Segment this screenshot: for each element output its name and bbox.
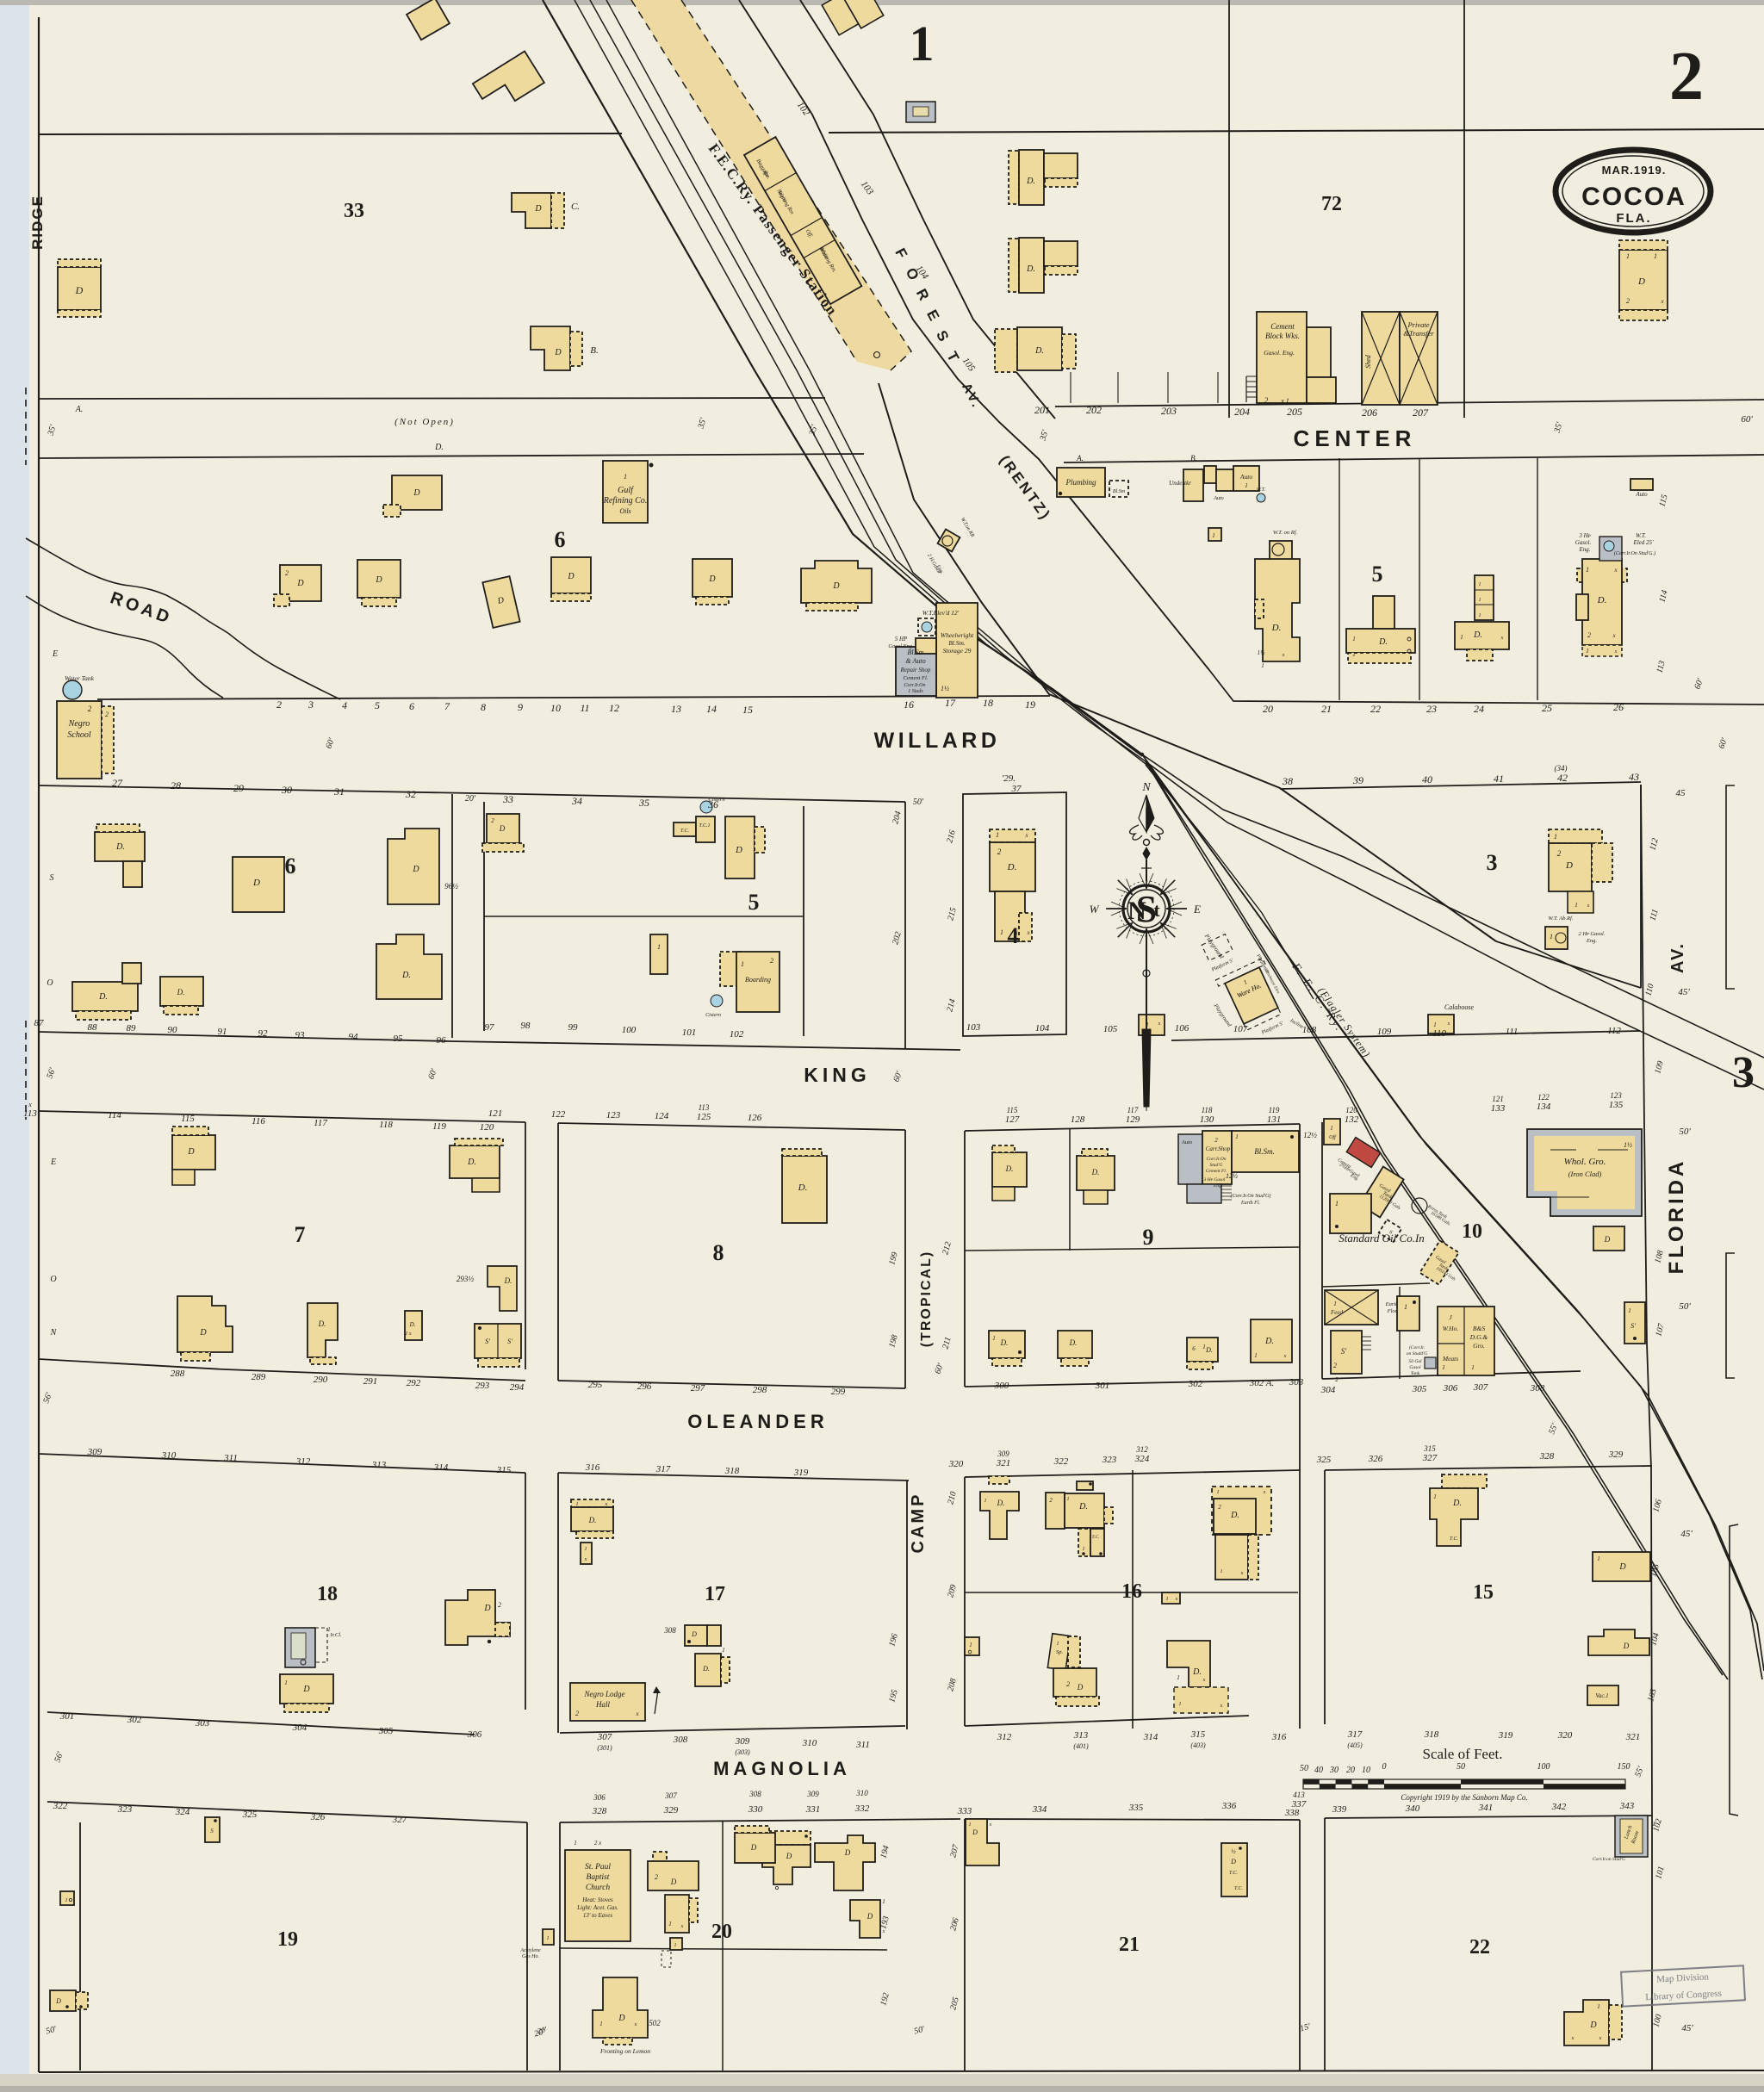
svg-text:35: 35	[638, 797, 649, 809]
svg-text:x: x	[1158, 1021, 1161, 1027]
svg-text:D: D	[413, 488, 420, 498]
svg-text:413: 413	[1293, 1791, 1305, 1799]
svg-text:17: 17	[705, 1583, 725, 1605]
svg-text:W.T. Ab.Rf.: W.T. Ab.Rf.	[1549, 916, 1574, 922]
svg-text:312: 312	[295, 1456, 311, 1467]
svg-text:96: 96	[437, 1035, 447, 1046]
svg-text:D.: D.	[504, 1276, 512, 1285]
svg-text:D: D	[708, 574, 716, 584]
svg-text:118: 118	[379, 1120, 393, 1130]
svg-text:302 A.: 302 A.	[1249, 1378, 1275, 1388]
svg-text:101: 101	[682, 1027, 697, 1038]
svg-text:1: 1	[547, 1936, 550, 1941]
svg-text:x: x	[1282, 653, 1285, 658]
svg-text:x: x	[1220, 1704, 1223, 1709]
svg-text:D.: D.	[588, 1516, 597, 1524]
svg-text:W.T.: W.T.	[1257, 487, 1265, 493]
svg-text:D: D	[1604, 1235, 1611, 1244]
svg-text:113: 113	[699, 1103, 710, 1112]
svg-text:150: 150	[1618, 1762, 1630, 1772]
svg-text:314: 314	[433, 1462, 449, 1473]
svg-text:& Auto: & Auto	[905, 657, 925, 665]
svg-text:D.: D.	[1378, 637, 1388, 647]
svg-text:D: D	[187, 1147, 195, 1157]
svg-text:43: 43	[1629, 771, 1639, 783]
svg-text:D: D	[1589, 2021, 1597, 2030]
svg-text:90: 90	[168, 1025, 178, 1035]
svg-text:100: 100	[1537, 1762, 1550, 1772]
svg-text:202: 202	[1086, 404, 1102, 416]
svg-text:1: 1	[773, 1872, 775, 1878]
svg-text:Calaboose: Calaboose	[1444, 1003, 1475, 1011]
svg-text:50: 50	[1300, 1764, 1308, 1773]
svg-text:305: 305	[378, 1726, 394, 1736]
svg-text:312: 312	[997, 1732, 1012, 1742]
svg-text:20: 20	[711, 1921, 732, 1943]
svg-text:60': 60'	[1741, 414, 1753, 425]
svg-text:205: 205	[1287, 406, 1302, 418]
svg-text:107: 107	[1233, 1024, 1248, 1034]
svg-text:9: 9	[518, 701, 523, 713]
svg-text:1: 1	[722, 1647, 725, 1654]
svg-text:339: 339	[1332, 1804, 1347, 1815]
svg-text:Cement: Cement	[1270, 322, 1295, 331]
svg-text:D: D	[691, 1630, 697, 1638]
svg-text:110: 110	[1432, 1028, 1446, 1039]
svg-text:x: x	[1571, 2036, 1575, 2041]
svg-text:311: 311	[855, 1740, 870, 1750]
svg-text:D: D	[483, 1604, 491, 1613]
svg-text:Cistern: Cistern	[705, 1013, 721, 1018]
svg-text:306: 306	[1443, 1383, 1458, 1394]
svg-text:307: 307	[597, 1732, 612, 1742]
svg-text:x: x	[28, 1101, 32, 1108]
svg-text:FLORIDA: FLORIDA	[1665, 1158, 1688, 1275]
svg-text:S': S'	[507, 1338, 512, 1345]
svg-text:½: ½	[1231, 1848, 1236, 1855]
svg-text:x: x	[1447, 1021, 1450, 1027]
svg-text:88: 88	[88, 1022, 98, 1033]
svg-text:118: 118	[1202, 1106, 1213, 1114]
svg-text:317: 317	[1347, 1729, 1363, 1740]
svg-text:89: 89	[127, 1023, 137, 1034]
svg-text:343: 343	[1619, 1801, 1635, 1811]
svg-text:308: 308	[748, 1790, 761, 1798]
svg-text:37: 37	[1011, 784, 1022, 794]
svg-text:97: 97	[485, 1022, 495, 1033]
svg-text:Oils: Oils	[619, 507, 630, 515]
svg-text:29: 29	[233, 782, 244, 794]
svg-text:O: O	[47, 978, 53, 988]
svg-text:S': S'	[1630, 1322, 1636, 1330]
svg-text:325: 325	[242, 1810, 258, 1820]
svg-text:N: N	[1141, 781, 1151, 794]
svg-text:Gas Ho.: Gas Ho.	[522, 1954, 539, 1959]
svg-text:15: 15	[742, 704, 753, 716]
svg-text:39: 39	[1352, 774, 1363, 786]
svg-text:16: 16	[1121, 1580, 1142, 1603]
svg-text:1: 1	[1000, 928, 1003, 936]
svg-text:1: 1	[1433, 1493, 1437, 1500]
svg-text:WILLARD: WILLARD	[874, 729, 1001, 753]
svg-text:D.: D.	[1264, 1337, 1274, 1346]
svg-text:329: 329	[1608, 1450, 1624, 1460]
svg-text:1: 1	[741, 960, 744, 968]
svg-text:St. Paul: St. Paul	[585, 1863, 611, 1872]
svg-text:328: 328	[1539, 1451, 1555, 1462]
svg-text:98: 98	[521, 1021, 531, 1031]
svg-text:303: 303	[1289, 1377, 1304, 1387]
svg-text:121: 121	[1492, 1095, 1504, 1103]
svg-text:Gasol: Gasol	[1409, 1365, 1421, 1370]
svg-text:6: 6	[1192, 1345, 1196, 1352]
svg-text:T.C.: T.C.	[680, 829, 689, 834]
svg-text:D.: D.	[98, 992, 108, 1002]
svg-text:40: 40	[1422, 773, 1432, 785]
svg-text:1: 1	[1177, 1674, 1180, 1681]
svg-text:B.: B.	[1190, 454, 1197, 462]
svg-text:306: 306	[467, 1729, 482, 1740]
svg-text:(Corr.Ir.On Stud'G.): (Corr.Ir.On Stud'G.)	[1614, 550, 1655, 556]
svg-text:2: 2	[1264, 396, 1269, 405]
svg-text:28: 28	[171, 779, 181, 791]
svg-text:93: 93	[295, 1030, 306, 1040]
svg-text:Corr.Ir.On: Corr.Ir.On	[904, 683, 925, 688]
svg-text:72: 72	[1321, 193, 1342, 215]
svg-text:Heat: Stoves: Heat: Stoves	[581, 1896, 613, 1903]
svg-text:Baptist: Baptist	[587, 1873, 610, 1882]
svg-text:306: 306	[593, 1793, 606, 1802]
svg-text:(Not Open): (Not Open)	[394, 417, 455, 427]
svg-text:104: 104	[1035, 1023, 1050, 1034]
svg-text:33: 33	[502, 793, 513, 805]
svg-text:1: 1	[1212, 532, 1215, 539]
svg-text:134: 134	[1537, 1102, 1551, 1112]
svg-text:1: 1	[992, 1335, 996, 1342]
svg-text:D: D	[1077, 1683, 1084, 1692]
svg-text:D: D	[302, 1685, 310, 1694]
svg-text:5 HP: 5 HP	[895, 636, 908, 642]
svg-text:Meats: Meats	[1442, 1355, 1458, 1363]
svg-text:318: 318	[1424, 1729, 1439, 1740]
svg-text:D: D	[55, 1997, 61, 2005]
svg-text:Ir.Cl.: Ir.Cl.	[329, 1632, 342, 1638]
svg-text:95: 95	[394, 1034, 404, 1044]
svg-text:18: 18	[317, 1583, 338, 1605]
svg-text:2: 2	[1218, 1504, 1221, 1511]
svg-text:1: 1	[585, 1547, 587, 1552]
svg-text:293½: 293½	[457, 1275, 475, 1283]
svg-text:D: D	[1565, 860, 1573, 871]
svg-text:on Studd'G: on Studd'G	[1407, 1351, 1428, 1356]
svg-text:D: D	[618, 2014, 625, 2023]
svg-text:300: 300	[994, 1381, 1009, 1391]
svg-text:2: 2	[770, 957, 773, 965]
svg-text:E: E	[52, 649, 58, 659]
svg-text:D: D	[554, 348, 562, 357]
svg-text:342: 342	[1551, 1802, 1567, 1812]
svg-text:8: 8	[481, 701, 486, 713]
svg-text:331: 331	[805, 1804, 821, 1815]
svg-text:91: 91	[218, 1027, 227, 1037]
svg-text:128: 128	[1071, 1114, 1085, 1125]
svg-text:1: 1	[910, 16, 935, 71]
svg-text:Private: Private	[1407, 320, 1429, 329]
svg-text:2: 2	[1669, 39, 1704, 115]
svg-text:10: 10	[1362, 1766, 1370, 1775]
svg-text:12½: 12½	[1303, 1131, 1317, 1139]
svg-text:W.T.: W.T.	[1636, 532, 1646, 539]
svg-text:10: 10	[550, 702, 561, 714]
svg-text:126: 126	[748, 1113, 762, 1123]
svg-text:12½: 12½	[1226, 1172, 1238, 1180]
svg-text:D.G.&: D.G.&	[1469, 1333, 1488, 1341]
svg-text:308: 308	[1530, 1383, 1545, 1394]
svg-text:335: 335	[1128, 1803, 1144, 1813]
svg-text:Refining Co.: Refining Co.	[603, 496, 648, 506]
svg-text:310: 310	[855, 1789, 868, 1797]
svg-text:21: 21	[1321, 703, 1332, 715]
svg-text:W.Ho.: W.Ho.	[1443, 1325, 1459, 1332]
svg-text:x: x	[605, 1502, 608, 1507]
svg-text:1: 1	[674, 1943, 677, 1948]
svg-text:Auto: Auto	[1213, 496, 1223, 501]
svg-text:C.: C.	[571, 202, 580, 212]
svg-text:135: 135	[1609, 1100, 1624, 1110]
svg-text:2: 2	[1626, 297, 1630, 305]
svg-text:321: 321	[1625, 1732, 1641, 1742]
svg-text:Fronting on Lemon: Fronting on Lemon	[599, 2047, 650, 2055]
svg-text:B&S: B&S	[1473, 1325, 1485, 1332]
svg-text:12: 12	[609, 702, 619, 714]
svg-text:119: 119	[1269, 1106, 1280, 1114]
svg-text:1: 1	[1261, 662, 1264, 669]
svg-text:1: 1	[1550, 933, 1553, 940]
svg-text:3: 3	[1732, 1048, 1755, 1097]
svg-text:293: 293	[475, 1381, 490, 1391]
svg-text:D: D	[1618, 1562, 1626, 1572]
svg-text:E: E	[1193, 903, 1201, 916]
svg-text:1: 1	[1245, 482, 1248, 489]
svg-text:1: 1	[1479, 582, 1481, 587]
svg-text:O: O	[50, 1275, 56, 1284]
svg-text:334: 334	[1032, 1804, 1047, 1815]
svg-text:15: 15	[1473, 1581, 1494, 1604]
svg-text:Copyright 1919 by the Sanborn: Copyright 1919 by the Sanborn Map Co.	[1401, 1793, 1527, 1802]
svg-text:1: 1	[1554, 833, 1557, 841]
svg-text:308: 308	[663, 1626, 676, 1635]
svg-text:9: 9	[1143, 1225, 1154, 1250]
svg-text:D.: D.	[1452, 1499, 1462, 1508]
svg-text:103: 103	[966, 1022, 981, 1033]
svg-text:1: 1	[1597, 2003, 1600, 2010]
svg-text:333: 333	[957, 1806, 972, 1816]
svg-text:Carr.Shop: Carr.Shop	[1206, 1145, 1231, 1152]
svg-text:207: 207	[1413, 407, 1429, 419]
svg-text:132: 132	[1345, 1114, 1359, 1125]
svg-text:D: D	[75, 284, 84, 296]
svg-text:x: x	[1240, 1571, 1244, 1576]
svg-text:D.: D.	[467, 1158, 476, 1167]
svg-text:D: D	[199, 1328, 207, 1338]
svg-text:11: 11	[580, 702, 589, 714]
svg-text:D: D	[670, 1878, 677, 1886]
svg-text:6: 6	[285, 854, 296, 878]
svg-text:304: 304	[1320, 1385, 1336, 1395]
svg-text:1: 1	[1254, 1352, 1258, 1359]
svg-text:1: 1	[1597, 1555, 1600, 1562]
svg-text:26: 26	[1613, 701, 1624, 713]
svg-text:113: 113	[23, 1108, 37, 1119]
svg-text:50': 50'	[913, 798, 924, 807]
svg-text:T.C.: T.C.	[1234, 1886, 1243, 1891]
svg-text:316: 316	[1271, 1732, 1287, 1742]
svg-text:304: 304	[292, 1723, 307, 1733]
svg-text:KING: KING	[804, 1064, 871, 1086]
svg-text:1: 1	[1083, 1547, 1085, 1552]
svg-text:108: 108	[1302, 1025, 1317, 1035]
svg-text:2: 2	[575, 1710, 579, 1717]
svg-text:20': 20'	[465, 794, 476, 804]
svg-text:D.: D.	[177, 988, 185, 996]
svg-text:3 Hᴘ Gasol: 3 Hᴘ Gasol	[1203, 1177, 1226, 1183]
svg-text:1: 1	[996, 831, 999, 839]
svg-text:Corr.Ir.on Stud'G: Corr.Ir.on Stud'G	[1593, 1857, 1625, 1862]
svg-text:D: D	[1623, 1642, 1630, 1650]
svg-text:25: 25	[1542, 702, 1552, 714]
svg-text:(TROPICAL): (TROPICAL)	[919, 1251, 934, 1347]
svg-text:307: 307	[664, 1791, 677, 1800]
svg-text:112: 112	[1607, 1026, 1621, 1036]
svg-text:Earth: Earth	[1385, 1301, 1399, 1307]
svg-text:3 Hᴘ: 3 Hᴘ	[1578, 532, 1590, 539]
svg-text:(Corr.Ir.On Stud'G): (Corr.Ir.On Stud'G)	[1231, 1193, 1271, 1199]
svg-text:Wheelwright: Wheelwright	[941, 631, 974, 639]
svg-text:Hall: Hall	[595, 1700, 611, 1709]
svg-text:326: 326	[310, 1812, 326, 1822]
svg-text:310: 310	[802, 1738, 817, 1748]
svg-text:96½: 96½	[444, 882, 458, 891]
svg-text:D.: D.	[115, 842, 125, 852]
svg-text:D.: D.	[1597, 595, 1607, 605]
svg-text:297: 297	[691, 1383, 705, 1394]
svg-text:309: 309	[806, 1790, 819, 1798]
svg-text:30: 30	[1329, 1766, 1339, 1775]
svg-text:330: 330	[748, 1804, 763, 1815]
svg-text:Block Wks.: Block Wks.	[1265, 332, 1300, 340]
svg-text:Eng.: Eng.	[1578, 546, 1590, 553]
svg-text:42: 42	[1557, 772, 1568, 784]
svg-text:&Transfer: &Transfer	[1403, 329, 1434, 338]
svg-text:121: 121	[488, 1108, 503, 1119]
svg-text:316: 316	[585, 1462, 600, 1473]
svg-text:303: 303	[195, 1718, 210, 1729]
svg-text:D.: D.	[1091, 1168, 1100, 1176]
svg-text:105: 105	[1103, 1024, 1118, 1034]
svg-text:120: 120	[480, 1122, 494, 1133]
svg-text:Cement Fl.: Cement Fl.	[1206, 1169, 1227, 1174]
svg-text:323: 323	[117, 1804, 133, 1815]
svg-text:MAGNOLIA: MAGNOLIA	[713, 1758, 851, 1779]
svg-text:t: t	[1153, 899, 1160, 921]
svg-text:D.: D.	[798, 1183, 808, 1193]
svg-text:1: 1	[576, 1502, 579, 1507]
svg-text:2: 2	[1049, 1497, 1053, 1504]
svg-text:Eled 25': Eled 25'	[1632, 539, 1654, 546]
svg-text:315: 315	[1423, 1444, 1436, 1453]
svg-text:x: x	[1263, 1490, 1266, 1495]
svg-text:127: 127	[1005, 1114, 1020, 1125]
svg-text:2: 2	[285, 569, 289, 577]
svg-text:1: 1	[574, 1840, 577, 1847]
svg-text:2 x: 2 x	[594, 1840, 602, 1847]
svg-text:133: 133	[1491, 1103, 1506, 1114]
svg-text:1½: 1½	[1624, 1141, 1632, 1149]
svg-text:3: 3	[307, 698, 314, 711]
svg-text:33: 33	[344, 200, 364, 222]
svg-text:1: 1	[882, 1898, 885, 1905]
svg-text:RIDGE: RIDGE	[29, 195, 46, 250]
svg-text:D: D	[832, 581, 840, 591]
svg-text:Auto: Auto	[1239, 473, 1252, 481]
svg-text:D: D	[567, 572, 575, 581]
svg-text:Vac.1: Vac.1	[1595, 1692, 1608, 1699]
svg-text:Bl.Sm: Bl.Sm	[908, 649, 924, 656]
svg-text:Feed: Feed	[1330, 1309, 1343, 1316]
svg-text:309: 309	[87, 1447, 102, 1457]
svg-text:30: 30	[281, 784, 292, 796]
svg-text:1: 1	[969, 1642, 972, 1648]
svg-text:D: D	[534, 204, 542, 214]
svg-text:119: 119	[432, 1121, 446, 1132]
svg-text:2: 2	[1333, 1362, 1337, 1369]
svg-text:313: 313	[1073, 1730, 1089, 1741]
svg-text:AV.: AV.	[1668, 942, 1687, 973]
svg-text:2: 2	[1066, 1680, 1070, 1688]
svg-text:324: 324	[175, 1807, 190, 1817]
svg-text:298: 298	[753, 1385, 767, 1395]
svg-text:122: 122	[1537, 1093, 1550, 1102]
svg-text:23: 23	[1426, 703, 1437, 715]
svg-text:40: 40	[1314, 1766, 1323, 1775]
svg-text:310: 310	[161, 1450, 177, 1461]
svg-text:1½: 1½	[941, 685, 949, 692]
svg-text:Bl.Sm.: Bl.Sm.	[948, 639, 966, 647]
svg-text:317: 317	[655, 1464, 671, 1474]
svg-text:313: 313	[371, 1460, 387, 1470]
svg-text:D.: D.	[401, 971, 411, 980]
svg-text:92: 92	[258, 1028, 269, 1039]
svg-text:(403): (403)	[1190, 1741, 1206, 1749]
svg-text:D: D	[375, 575, 382, 585]
svg-text:D.: D.	[1026, 177, 1035, 186]
svg-text:1: 1	[1460, 634, 1463, 641]
svg-text:326: 326	[1368, 1454, 1383, 1464]
svg-text:295: 295	[588, 1380, 603, 1390]
svg-text:1: 1	[284, 1679, 288, 1686]
svg-text:Off: Off	[1329, 1134, 1337, 1140]
svg-text:D: D	[786, 1852, 792, 1860]
svg-text:D.: D.	[318, 1319, 326, 1328]
svg-text:19: 19	[1025, 698, 1035, 711]
svg-text:S': S'	[485, 1338, 490, 1345]
svg-text:288: 288	[171, 1369, 185, 1379]
svg-text:1½: 1½	[1258, 649, 1266, 656]
svg-text:341: 341	[1478, 1803, 1494, 1813]
svg-text:x: x	[1587, 903, 1590, 909]
svg-text:50 Gal: 50 Gal	[1408, 1359, 1422, 1364]
svg-text:122: 122	[551, 1109, 566, 1120]
